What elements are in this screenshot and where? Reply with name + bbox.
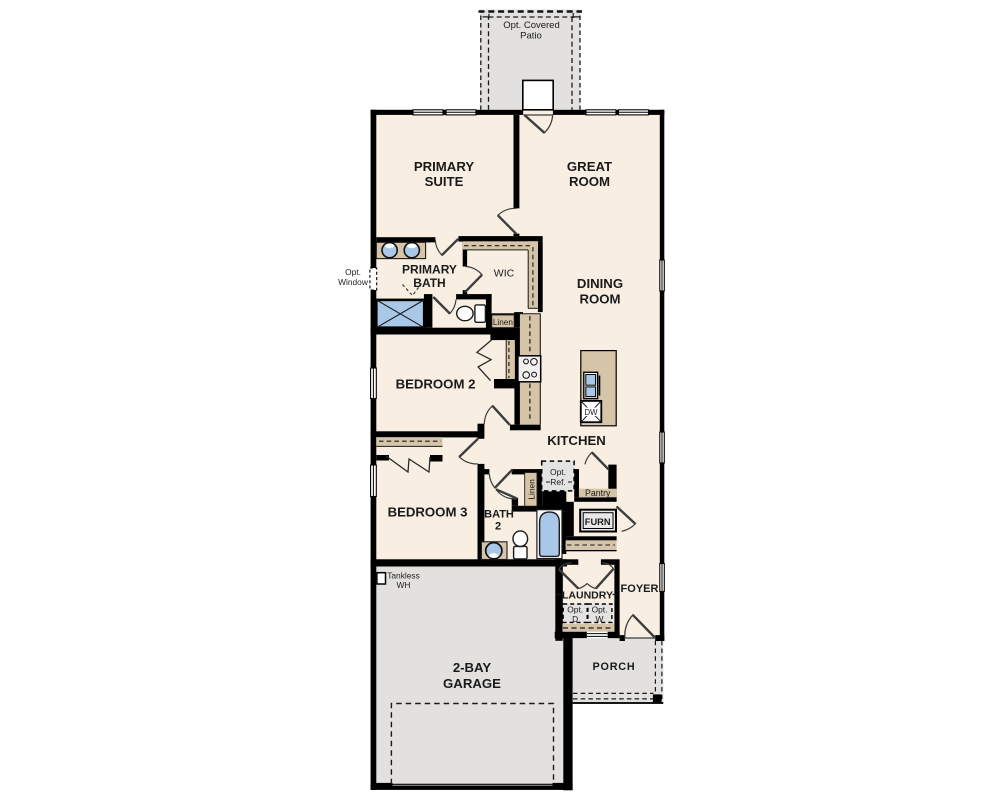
svg-text:Pantry: Pantry bbox=[585, 488, 611, 498]
svg-text:Ref.: Ref. bbox=[550, 477, 566, 487]
svg-text:Tankless: Tankless bbox=[387, 571, 420, 581]
svg-text:Opt.: Opt. bbox=[550, 467, 566, 477]
svg-text:Opt.: Opt. bbox=[345, 267, 361, 277]
svg-text:BEDROOM 3: BEDROOM 3 bbox=[388, 504, 468, 519]
svg-text:GARAGE: GARAGE bbox=[443, 676, 501, 691]
svg-text:BATH: BATH bbox=[484, 509, 514, 521]
svg-text:WIC: WIC bbox=[494, 267, 515, 279]
svg-text:DW: DW bbox=[585, 408, 599, 417]
svg-text:Linen: Linen bbox=[493, 318, 513, 327]
svg-text:BATH: BATH bbox=[413, 276, 445, 290]
svg-text:GREAT: GREAT bbox=[567, 159, 612, 174]
svg-text:FURN: FURN bbox=[585, 517, 611, 527]
svg-text:D: D bbox=[572, 614, 578, 624]
svg-text:Linen: Linen bbox=[526, 479, 536, 500]
svg-text:PORCH: PORCH bbox=[593, 661, 636, 673]
svg-text:Patio: Patio bbox=[520, 31, 542, 42]
svg-text:SUITE: SUITE bbox=[425, 174, 464, 189]
svg-text:2-BAY: 2-BAY bbox=[453, 660, 492, 675]
svg-text:DINING: DINING bbox=[577, 276, 623, 291]
svg-text:BEDROOM 2: BEDROOM 2 bbox=[396, 376, 476, 391]
svg-text:PRIMARY: PRIMARY bbox=[402, 263, 457, 277]
svg-text:FOYER: FOYER bbox=[621, 583, 659, 595]
svg-text:2: 2 bbox=[495, 521, 501, 533]
svg-text:WH: WH bbox=[397, 580, 411, 590]
svg-text:ROOM: ROOM bbox=[569, 174, 610, 189]
svg-text:KITCHEN: KITCHEN bbox=[547, 433, 606, 448]
svg-text:Opt. Covered: Opt. Covered bbox=[503, 20, 560, 31]
svg-text:LAUNDRY: LAUNDRY bbox=[562, 590, 613, 602]
svg-text:ROOM: ROOM bbox=[579, 292, 620, 307]
svg-text:Window: Window bbox=[338, 277, 369, 287]
svg-text:W: W bbox=[596, 614, 604, 624]
svg-text:PRIMARY: PRIMARY bbox=[414, 159, 475, 174]
